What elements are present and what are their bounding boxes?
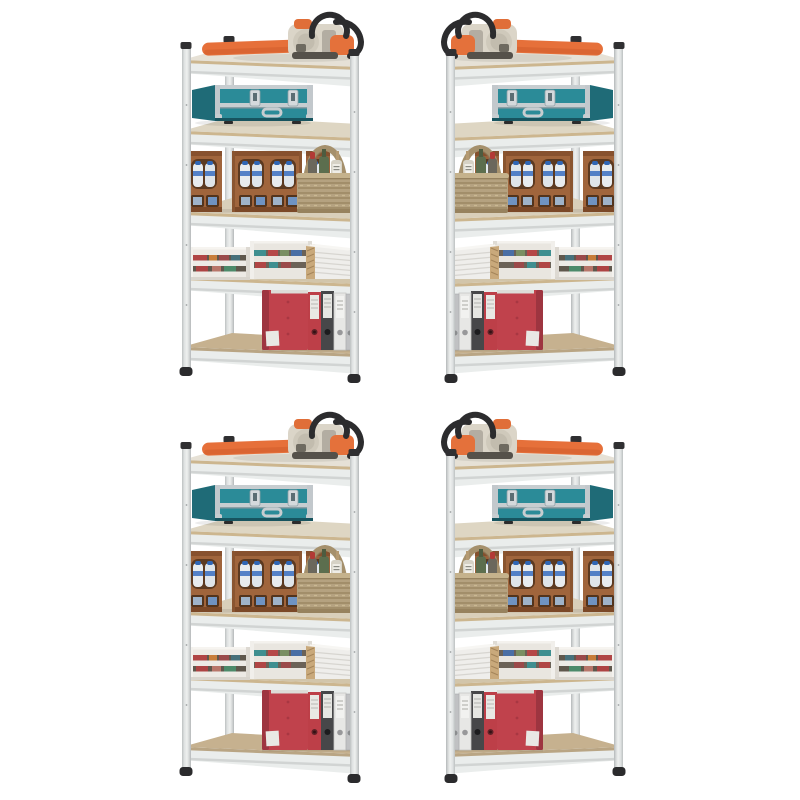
product-photo: product photo (0, 0, 800, 800)
shelf-unit-top-right (444, 15, 626, 383)
shelf-unit-bottom-right (444, 415, 626, 783)
shelf-unit-bottom-left (180, 415, 362, 783)
shelf-unit-top-left (180, 15, 362, 383)
shelving-photo-svg: product photo (0, 0, 800, 800)
